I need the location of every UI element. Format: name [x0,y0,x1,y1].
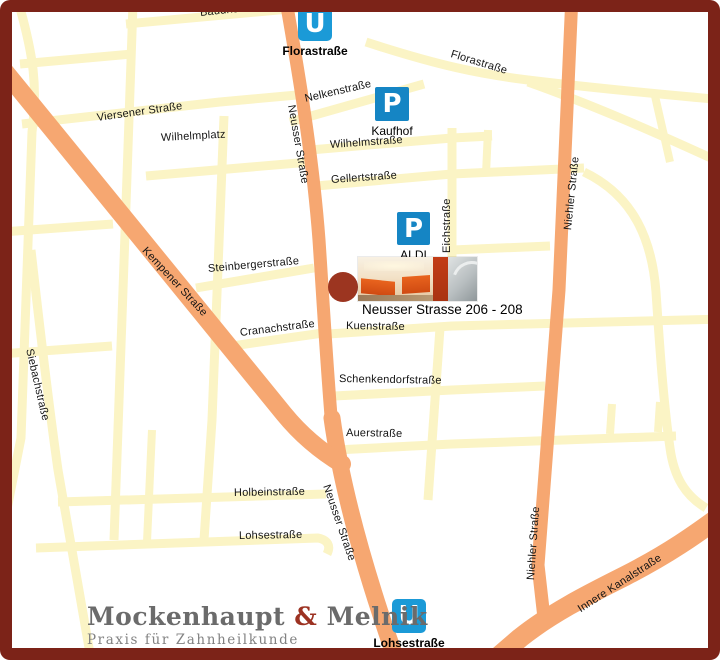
logo-subtitle: Praxis für Zahnheilkunde [87,632,428,648]
practice-photo [358,257,477,301]
ubahn-icon: U [298,7,332,41]
logo-title: Mockenhaupt & Melnik [87,604,428,630]
photo-red-divider [433,257,448,301]
parking-icon: P [397,212,430,245]
logo-name-first: Mockenhaupt [87,602,285,631]
practice-address-caption: Neusser Strasse 206 - 208 [362,302,523,317]
orange-bench [402,275,430,294]
treatment-room-photo [448,257,477,301]
practice-location-marker [328,272,358,302]
city-map: BaudristraßeFlorastraßeNelkenstraßeViers… [0,0,720,660]
orange-bench [361,278,395,297]
points-of-interest-layer: Neusser Strasse 206 - 208 UFlorastraßePK… [0,0,720,660]
photo-light-glow [364,261,424,271]
badge-label: Kaufhof [332,124,452,138]
steel-equipment-curve [448,257,477,301]
practice-logo: Mockenhaupt & Melnik Praxis für Zahnheil… [87,604,428,648]
waiting-room-photo [358,257,433,301]
photo-floor [358,295,433,301]
logo-ampersand: & [294,602,317,631]
badge-label: Florastraße [255,44,375,58]
logo-name-second: Melnik [327,602,428,631]
parking-icon: P [375,87,409,121]
